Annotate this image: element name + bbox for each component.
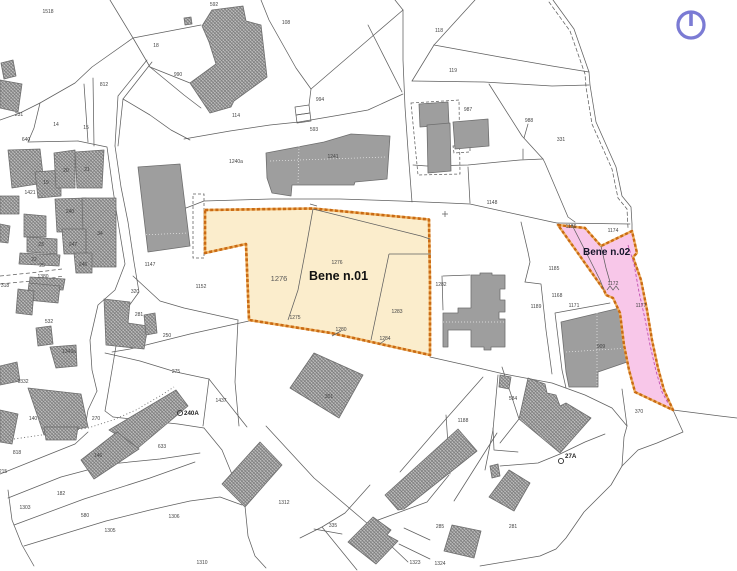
svg-text:818: 818: [13, 450, 22, 456]
svg-text:1241: 1241: [327, 154, 338, 160]
svg-text:246: 246: [79, 262, 88, 268]
svg-text:1421: 1421: [24, 190, 35, 196]
svg-text:584: 584: [509, 396, 518, 402]
svg-text:1303: 1303: [19, 505, 30, 511]
svg-text:331: 331: [557, 137, 566, 143]
svg-text:285: 285: [436, 524, 445, 530]
svg-text:182: 182: [57, 491, 66, 497]
svg-text:Bene n.01: Bene n.01: [309, 269, 368, 283]
svg-text:320: 320: [131, 289, 140, 295]
svg-text:318: 318: [1, 283, 10, 289]
svg-text:988: 988: [525, 118, 534, 124]
svg-text:119: 119: [449, 68, 457, 74]
svg-text:240A: 240A: [184, 410, 199, 417]
svg-text:1148: 1148: [487, 200, 498, 206]
svg-text:1171: 1171: [569, 303, 580, 309]
svg-text:1185: 1185: [549, 266, 560, 272]
svg-text:108: 108: [282, 20, 291, 26]
svg-text:1305: 1305: [104, 528, 115, 534]
svg-text:1275: 1275: [289, 315, 300, 321]
svg-text:146: 146: [94, 453, 103, 459]
svg-text:140: 140: [29, 416, 38, 422]
svg-text:270: 270: [92, 416, 101, 422]
svg-text:1186: 1186: [566, 224, 577, 230]
svg-text:215: 215: [0, 469, 7, 475]
svg-text:592: 592: [210, 2, 219, 8]
svg-text:250: 250: [163, 333, 172, 339]
svg-text:909: 909: [597, 344, 606, 350]
svg-text:114: 114: [232, 113, 240, 119]
svg-text:118: 118: [435, 28, 443, 34]
svg-text:1280: 1280: [335, 327, 346, 333]
svg-text:532: 532: [45, 319, 54, 325]
svg-text:1189: 1189: [531, 304, 542, 310]
svg-text:1437: 1437: [215, 398, 226, 404]
svg-text:27A: 27A: [565, 453, 577, 460]
svg-text:994: 994: [316, 97, 325, 103]
svg-text:1312: 1312: [278, 500, 289, 506]
svg-text:240: 240: [66, 209, 75, 215]
svg-text:593: 593: [310, 127, 319, 133]
svg-text:1172: 1172: [608, 281, 619, 287]
svg-text:247: 247: [69, 242, 78, 248]
svg-text:281: 281: [135, 312, 144, 318]
svg-text:990: 990: [174, 72, 183, 78]
svg-text:Bene n.02: Bene n.02: [583, 247, 631, 258]
svg-text:281: 281: [509, 524, 518, 530]
svg-text:1188: 1188: [458, 418, 469, 424]
svg-text:1283: 1283: [391, 309, 402, 315]
svg-text:22: 22: [31, 257, 37, 263]
svg-text:580: 580: [81, 513, 90, 519]
svg-text:1152: 1152: [196, 284, 207, 290]
svg-text:25: 25: [39, 263, 45, 269]
svg-text:1240a: 1240a: [229, 159, 243, 165]
svg-text:15: 15: [83, 125, 89, 131]
svg-text:1518: 1518: [42, 9, 53, 15]
svg-text:1276: 1276: [331, 260, 342, 266]
svg-text:23: 23: [38, 242, 44, 248]
svg-text:1276: 1276: [271, 274, 288, 283]
svg-text:1332: 1332: [17, 379, 28, 385]
svg-text:1284: 1284: [379, 336, 390, 342]
svg-text:1310: 1310: [196, 560, 207, 566]
svg-text:812: 812: [100, 82, 109, 88]
svg-text:1168: 1168: [552, 293, 563, 299]
svg-text:1282: 1282: [435, 282, 446, 288]
svg-text:1306: 1306: [168, 514, 179, 520]
svg-text:987: 987: [464, 107, 473, 113]
svg-text:1174: 1174: [608, 228, 619, 234]
svg-text:1380: 1380: [37, 274, 48, 280]
svg-text:20: 20: [63, 168, 69, 174]
svg-text:1324: 1324: [434, 561, 445, 567]
svg-text:335: 335: [329, 523, 338, 529]
svg-text:275: 275: [172, 369, 181, 375]
svg-text:19: 19: [43, 180, 49, 186]
svg-text:301: 301: [325, 394, 334, 400]
svg-text:18: 18: [153, 43, 159, 49]
svg-text:1177: 1177: [636, 303, 647, 309]
svg-text:640: 640: [22, 137, 31, 143]
svg-text:34: 34: [97, 231, 103, 237]
svg-text:21: 21: [84, 167, 90, 173]
svg-text:1343a: 1343a: [62, 349, 76, 355]
svg-text:633: 633: [158, 444, 167, 450]
svg-text:1147: 1147: [145, 262, 156, 268]
svg-text:1323: 1323: [409, 560, 420, 566]
svg-text:370: 370: [635, 409, 644, 415]
svg-text:14: 14: [53, 122, 59, 128]
svg-text:231: 231: [15, 112, 24, 118]
